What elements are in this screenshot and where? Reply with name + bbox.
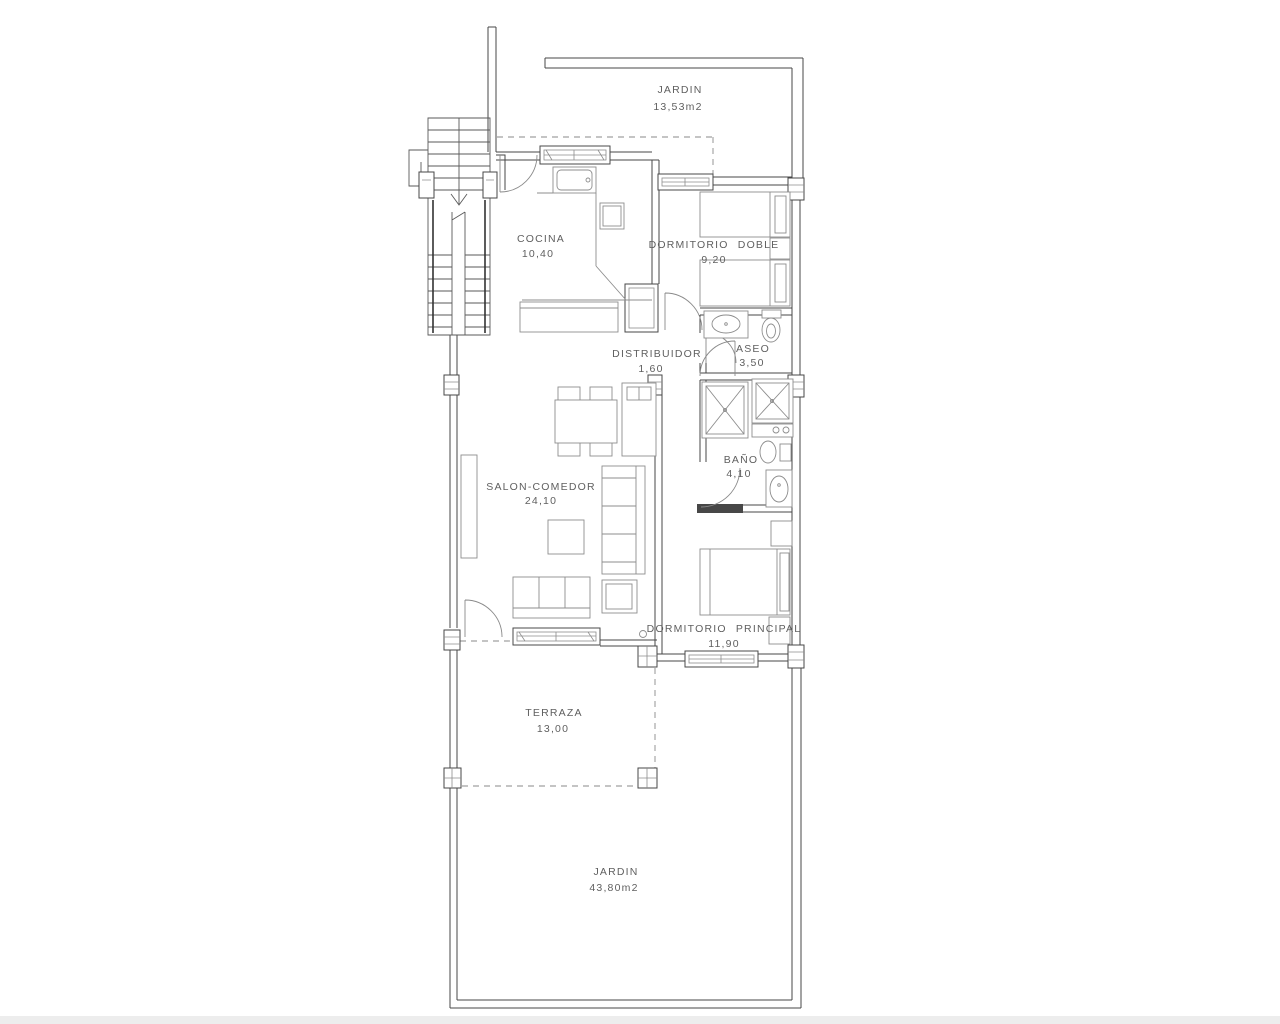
pillar [788,645,804,668]
room-label-cocina-area: 10,40 [522,248,554,260]
room-label-jardin-bottom-name: JARDIN [593,866,638,878]
kitchen-sink [553,167,596,193]
staircase [409,118,497,335]
single-bed [700,192,790,237]
tv-unit [461,455,477,558]
room-label-aseo-area: 3,50 [739,357,764,369]
kitchen-oven [600,203,624,229]
kitchen-door [500,155,537,192]
kitchen-window [540,146,610,164]
nightstand [771,521,792,546]
wall-column [625,284,658,332]
room-label-aseo-name: ASEO [736,343,770,355]
terraza-pillar [638,646,657,667]
salon-furniture [461,383,656,618]
sofa-small [513,577,590,618]
coffee-table [548,520,584,554]
single-bed [700,260,790,306]
double-bed [700,549,790,615]
room-label-distribuidor-area: 1,60 [638,363,663,375]
dormitorio-doble-window [658,174,713,190]
toilet [762,310,781,342]
room-label-dormitorio-principal-area: 11,90 [708,638,740,650]
room-label-terraza-area: 13,00 [537,723,569,735]
room-label-dormitorio-principal-name: DORMITORIO PRINCIPAL [647,623,802,635]
room-label-jardin-top-name: JARDIN [657,84,702,96]
bathroom-counter [752,424,793,437]
dormitorio-principal-window [685,651,758,667]
room-label-terraza-name: TERRAZA [525,707,582,719]
terraza-pillar [638,768,657,788]
room-label-dormitorio-doble-area: 9,20 [701,254,726,266]
room-label-salon-area: 24,10 [525,495,557,507]
room-label-bano-area: 4,10 [726,468,751,480]
page-bottom-edge [0,1016,1280,1024]
sideboard-desk [622,383,656,456]
room-label-salon-name: SALON-COMEDOR [486,481,596,493]
salon-window [513,628,600,645]
washbasin [704,311,748,338]
room-label-cocina-name: COCINA [517,233,565,245]
toilet [760,441,791,463]
armchair [602,580,637,613]
room-label-distribuidor-name: DISTRIBUIDOR [612,348,702,360]
terraza-pillar [444,768,461,788]
shower-tray [752,379,793,423]
pillar [444,630,460,650]
floor-plan: JARDIN 13,53m2 COCINA 10,40 DORMITORIO D… [0,0,1280,1024]
bano-fixtures [702,379,793,507]
door-stop [640,631,647,638]
dormitorio-doble-door [665,293,702,330]
kitchen-bar [520,302,618,332]
hall-door [700,341,735,376]
aseo-fixtures [704,310,781,342]
room-label-jardin-top-area: 13,53m2 [653,101,702,113]
room-label-jardin-bottom-area: 43,80m2 [589,882,638,894]
washbasin [766,470,792,507]
dashed-boundaries [460,137,713,786]
pillar [444,375,459,395]
dining-table-set [555,387,617,456]
sofa-large [602,466,645,574]
salon-terrace-door [465,600,502,637]
room-label-bano-name: BAÑO [724,453,759,466]
shower-tray [702,382,748,438]
room-label-dormitorio-doble-name: DORMITORIO DOBLE [649,239,780,251]
